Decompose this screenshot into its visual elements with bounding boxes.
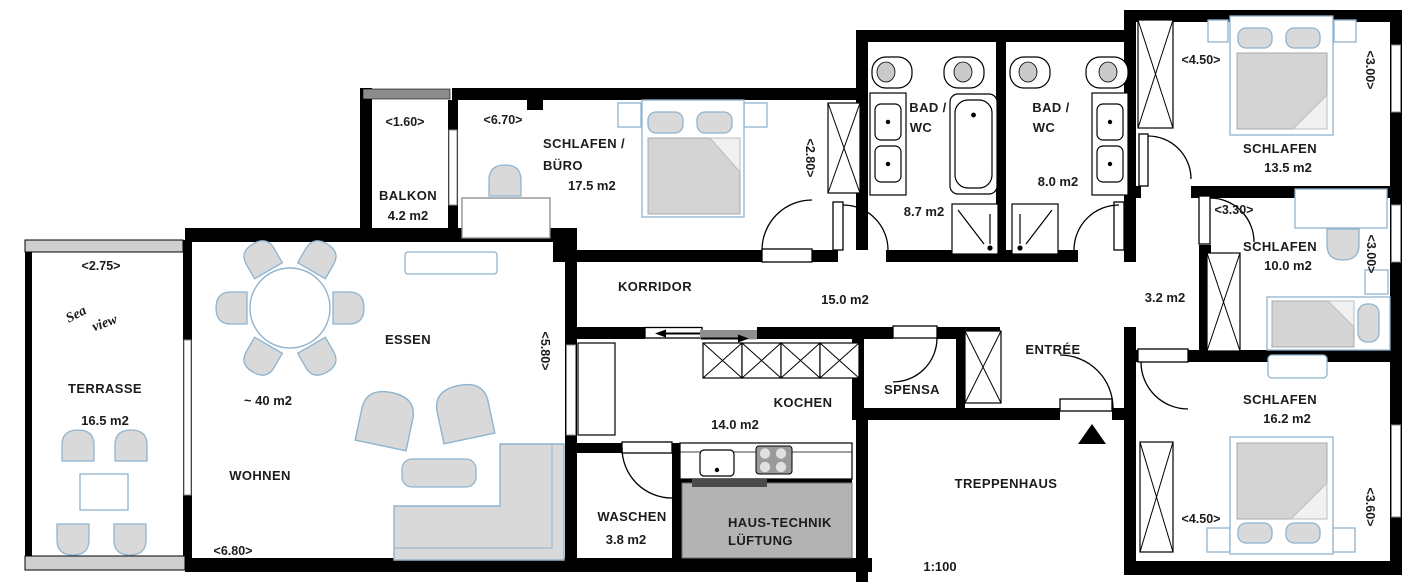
dim-wohnen-w: <6.80> bbox=[214, 544, 253, 558]
balcony-railing bbox=[363, 89, 450, 99]
room-label-schlafen-buero-1: SCHLAFEN / bbox=[543, 136, 625, 151]
kitchen-cabinet bbox=[703, 343, 742, 378]
room-label-kochen: KOCHEN bbox=[774, 395, 833, 410]
desk bbox=[1295, 189, 1387, 228]
dim-schlafen13-w: <4.50> bbox=[1182, 53, 1221, 67]
coffee-table bbox=[402, 459, 476, 487]
kitchen-fixtures bbox=[578, 343, 859, 479]
sink bbox=[872, 57, 912, 88]
dim-terrasse: <2.75> bbox=[82, 259, 121, 273]
floor-plan: <1.60> BALKON 4.2 m2 <6.70> SCHLAFEN / B… bbox=[0, 0, 1420, 582]
scale-label: 1:100 bbox=[923, 559, 956, 574]
shower bbox=[952, 204, 998, 254]
wardrobe bbox=[828, 103, 860, 193]
room-label-balkon: BALKON bbox=[379, 188, 437, 203]
wardrobe bbox=[965, 331, 1001, 403]
armchair bbox=[355, 387, 417, 451]
door-arc bbox=[893, 338, 937, 382]
area-wohnen: ~ 40 m2 bbox=[244, 393, 292, 408]
toilet-unit bbox=[870, 93, 906, 195]
door-leaf bbox=[622, 442, 672, 453]
dim-wohnen-d: <5.80> bbox=[538, 332, 552, 371]
room-label-waschen: WASCHEN bbox=[597, 509, 666, 524]
duct bbox=[692, 479, 767, 487]
area-waschen: 3.8 m2 bbox=[606, 532, 646, 547]
room-label-haustechnik-2: LÜFTUNG bbox=[728, 533, 793, 548]
room-label-essen: ESSEN bbox=[385, 332, 431, 347]
dim-schlafen10-w: <3.30> bbox=[1215, 203, 1254, 217]
kitchen-cabinet bbox=[781, 343, 820, 378]
window bbox=[567, 345, 576, 435]
desk-schlafen-buero bbox=[462, 165, 550, 238]
door-arc bbox=[1141, 362, 1188, 409]
wall-segment bbox=[1124, 561, 1402, 575]
sea-view-note-2: view bbox=[90, 312, 120, 335]
wall-segment bbox=[1112, 408, 1136, 420]
area-schlafen10: 10.0 m2 bbox=[1264, 258, 1312, 273]
wall-segment bbox=[856, 408, 868, 582]
room-label-schlafen16: SCHLAFEN bbox=[1243, 392, 1317, 407]
room-label-schlafen13: SCHLAFEN bbox=[1243, 141, 1317, 156]
door-leaf bbox=[1199, 196, 1210, 244]
room-label-treppenhaus: TREPPENHAUS bbox=[955, 476, 1058, 491]
wall-segment bbox=[1124, 327, 1136, 561]
kitchen-cabinet bbox=[820, 343, 859, 378]
door-leaf bbox=[762, 249, 812, 262]
room-label-bad1-1: BAD / bbox=[909, 100, 946, 115]
door-arc bbox=[1074, 205, 1119, 250]
door-leaf bbox=[1139, 134, 1148, 186]
pillow bbox=[1286, 523, 1320, 543]
wall-segment bbox=[812, 250, 838, 262]
tall-cabinet bbox=[578, 343, 615, 435]
entrance-door-leaf bbox=[1060, 399, 1112, 411]
room-label-bad1-2: WC bbox=[910, 120, 933, 135]
pillow bbox=[1238, 28, 1272, 48]
area-flur: 3.2 m2 bbox=[1145, 290, 1185, 305]
bed-double bbox=[1207, 437, 1355, 554]
door-arc bbox=[762, 200, 812, 250]
area-schlafen16: 16.2 m2 bbox=[1263, 411, 1311, 426]
chair bbox=[1327, 229, 1359, 260]
door-arc bbox=[622, 448, 672, 498]
area-balkon: 4.2 m2 bbox=[388, 208, 428, 223]
area-bad1: 8.7 m2 bbox=[904, 204, 944, 219]
room-label-schlafen10: SCHLAFEN bbox=[1243, 239, 1317, 254]
area-bad2: 8.0 m2 bbox=[1038, 174, 1078, 189]
dim-schlafen-buero-d: <2.80> bbox=[803, 139, 817, 178]
area-terrasse: 16.5 m2 bbox=[81, 413, 129, 428]
pillow bbox=[648, 112, 683, 133]
dim-schlafen16-w: <4.50> bbox=[1182, 512, 1221, 526]
terrace-table bbox=[80, 474, 128, 510]
window bbox=[1392, 45, 1401, 112]
room-label-spensa: SPENSA bbox=[884, 382, 940, 397]
dim-schlafen-buero-w: <6.70> bbox=[484, 113, 523, 127]
dim-balkon: <1.60> bbox=[386, 115, 425, 129]
door-leaf bbox=[833, 202, 843, 250]
room-label-terrasse: TERRASSE bbox=[68, 381, 142, 396]
kitchen-cabinet bbox=[742, 343, 781, 378]
pillow bbox=[697, 112, 732, 133]
sliding-door bbox=[645, 328, 757, 343]
bathtub bbox=[950, 94, 997, 194]
sink bbox=[1086, 57, 1128, 88]
wall-segment bbox=[956, 331, 965, 408]
bed-double-schlafen-buero bbox=[618, 100, 767, 217]
wall-segment bbox=[565, 327, 645, 339]
window bbox=[1392, 425, 1401, 517]
window bbox=[449, 130, 457, 205]
nightstand bbox=[1365, 270, 1388, 294]
sink bbox=[1010, 57, 1050, 88]
wall-segment bbox=[565, 443, 622, 453]
room-label-bad2-2: WC bbox=[1033, 120, 1056, 135]
area-schlafen13: 13.5 m2 bbox=[1264, 160, 1312, 175]
room-label-korridor: KORRIDOR bbox=[618, 279, 692, 294]
room-label-entree: ENTRÉE bbox=[1025, 342, 1080, 357]
room-label-wohnen: WOHNEN bbox=[229, 468, 291, 483]
area-kochen: 14.0 m2 bbox=[711, 417, 759, 432]
wall-segment bbox=[858, 30, 1136, 42]
door-arc bbox=[1148, 136, 1191, 179]
door-leaf bbox=[1138, 349, 1188, 362]
terrace-furniture bbox=[57, 430, 147, 555]
wardrobe bbox=[1138, 20, 1173, 128]
pillow bbox=[1286, 28, 1320, 48]
sideboard bbox=[405, 252, 497, 274]
dining-set bbox=[216, 236, 364, 380]
dim-schlafen13-d: <3.00> bbox=[1363, 51, 1377, 90]
wall-segment bbox=[25, 240, 32, 570]
dim-schlafen10-d: <3.00> bbox=[1364, 235, 1378, 274]
kitchen-sink bbox=[700, 450, 734, 476]
terrace-railing-bottom bbox=[25, 556, 185, 570]
shower bbox=[1012, 204, 1058, 254]
wall-segment bbox=[527, 100, 543, 110]
wall-segment bbox=[852, 408, 1060, 420]
dim-schlafen16-d: <3.60> bbox=[1363, 488, 1377, 527]
toilet-unit bbox=[1092, 93, 1128, 195]
pillow bbox=[1238, 523, 1272, 543]
room-label-schlafen-buero-2: BÜRO bbox=[543, 158, 583, 173]
door-leaf bbox=[893, 326, 937, 338]
terrace-railing-top bbox=[25, 240, 183, 252]
wall-segment bbox=[757, 327, 852, 339]
area-korridor: 15.0 m2 bbox=[821, 292, 869, 307]
sink bbox=[944, 57, 984, 88]
armchair bbox=[433, 380, 495, 444]
wall-segment bbox=[360, 88, 372, 240]
window bbox=[1392, 205, 1401, 262]
sea-view-note-1: Sea bbox=[64, 303, 90, 326]
room-label-bad2-1: BAD / bbox=[1032, 100, 1069, 115]
entrance-arrow-icon bbox=[1078, 424, 1106, 444]
desk bbox=[1268, 355, 1327, 378]
room-label-haustechnik-1: HAUS-TECHNIK bbox=[728, 515, 832, 530]
wall-segment bbox=[565, 250, 762, 262]
bed-double-schlafen-13 bbox=[1208, 16, 1356, 135]
chair bbox=[489, 165, 521, 196]
wardrobe bbox=[1140, 442, 1173, 552]
bedroom-16-furniture bbox=[1207, 355, 1355, 554]
wall-segment bbox=[452, 88, 858, 100]
bed-single bbox=[1267, 297, 1390, 350]
stove bbox=[756, 446, 792, 474]
dining-table bbox=[250, 268, 330, 348]
window bbox=[184, 340, 191, 495]
area-schlafen-buero: 17.5 m2 bbox=[568, 178, 616, 193]
pillow bbox=[1358, 304, 1379, 342]
wardrobe bbox=[1207, 253, 1240, 351]
door-leaf bbox=[1114, 202, 1124, 250]
